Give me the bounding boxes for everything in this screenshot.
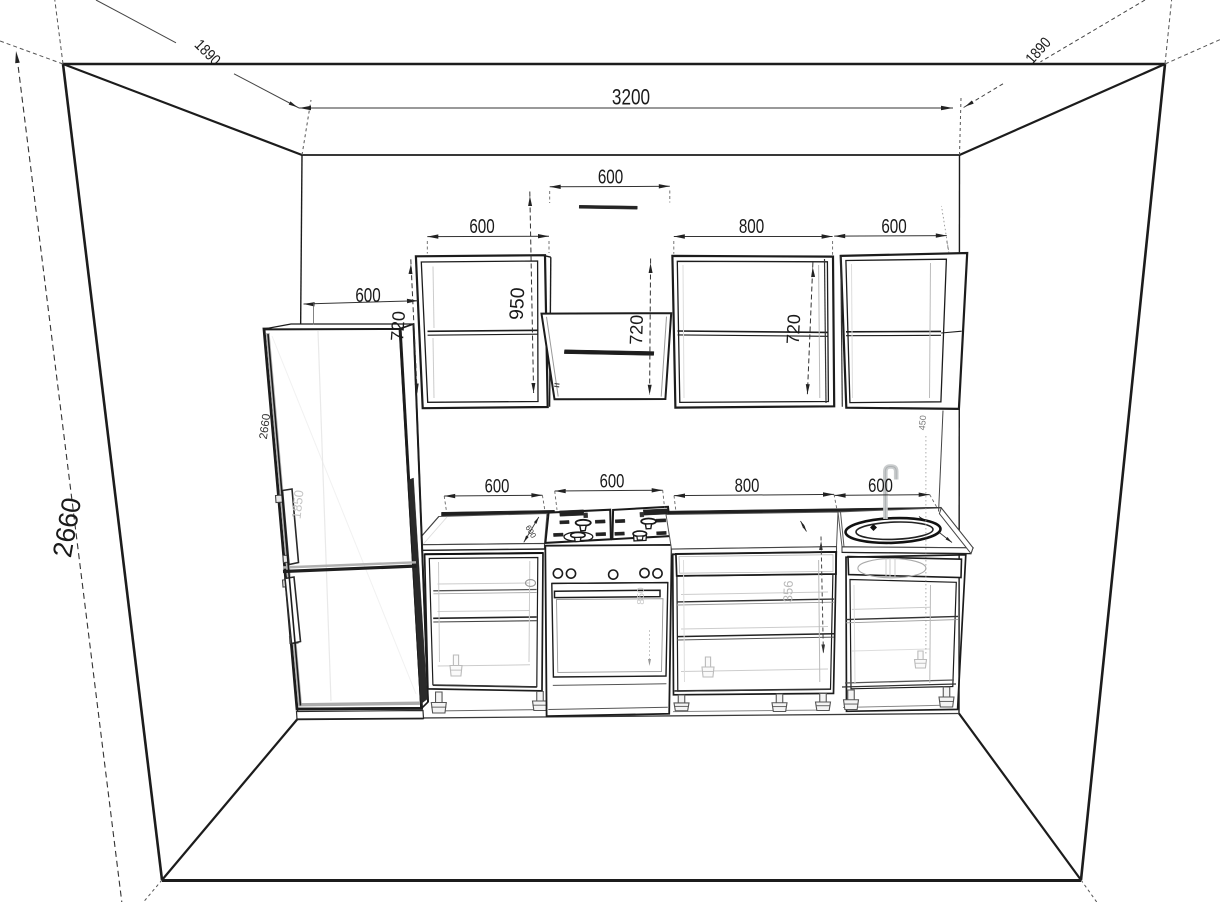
svg-text:600: 600 xyxy=(485,476,510,497)
svg-text:720: 720 xyxy=(626,314,647,345)
svg-text:600: 600 xyxy=(600,471,625,492)
svg-text:356: 356 xyxy=(780,580,796,602)
svg-text:600: 600 xyxy=(881,215,906,238)
svg-text:450: 450 xyxy=(917,415,928,431)
svg-text:800: 800 xyxy=(739,215,764,238)
svg-text:720: 720 xyxy=(783,314,805,345)
svg-text:850: 850 xyxy=(635,587,647,605)
svg-text:600: 600 xyxy=(598,165,623,188)
svg-text:720: 720 xyxy=(387,310,409,341)
svg-text:3200: 3200 xyxy=(612,86,650,111)
svg-text:600: 600 xyxy=(355,284,380,307)
svg-text:600: 600 xyxy=(469,215,494,238)
svg-text:1850: 1850 xyxy=(289,489,307,519)
svg-text:950: 950 xyxy=(506,287,530,321)
svg-text:600: 600 xyxy=(868,475,893,496)
svg-text:800: 800 xyxy=(735,475,760,496)
